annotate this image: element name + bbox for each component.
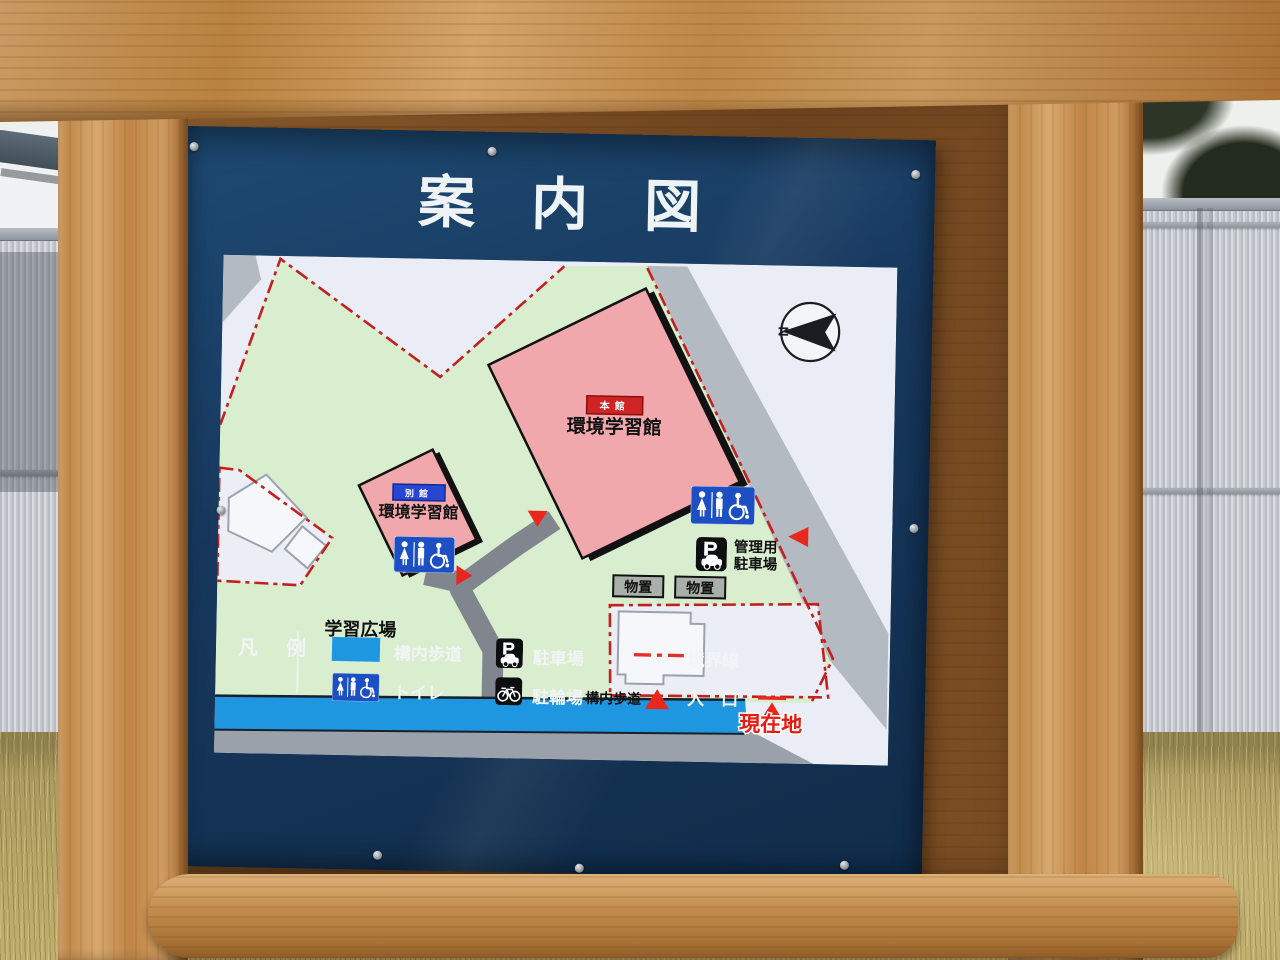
fence-panel-gap: [1207, 208, 1213, 763]
main-building-badge-label: 本館: [600, 399, 630, 413]
screw: [575, 864, 584, 873]
toilet-icon: [394, 536, 455, 573]
bicycle-icon: [495, 677, 523, 706]
sign-title: 案内図: [184, 152, 935, 248]
legend-entrance-label: 入 口: [687, 685, 738, 711]
map-walkway-label: 構内歩道: [585, 690, 641, 707]
boundary-line-sample: [634, 651, 684, 660]
toilet-icon: [690, 486, 755, 525]
screw: [911, 170, 920, 179]
admin-parking-label-1: 管理用: [734, 538, 778, 557]
parking-icon: [696, 537, 728, 572]
legend-toilet-label: トイレ: [393, 678, 444, 704]
wooden-bottom-rail: [148, 874, 1238, 958]
screw: [190, 142, 199, 151]
legend-bicycle-label: 駐輪場: [532, 683, 583, 709]
you-are-here-bar: [758, 696, 786, 700]
legend-walkway-label: 構内歩道: [394, 639, 462, 665]
north-label: N: [775, 326, 791, 336]
admin-parking-label-2: 駐車場: [734, 555, 778, 574]
main-building-name: 環境学習館: [567, 414, 662, 439]
annex-building-badge-label: 別館: [404, 487, 433, 499]
entrance-triangle-sample: [645, 689, 669, 709]
legend-parking-label: 駐車場: [533, 644, 584, 670]
legend-boundary-label: 境界線: [688, 646, 739, 672]
guide-sign-panel: 案内図: [172, 126, 936, 880]
wooden-post-right: [1008, 26, 1143, 960]
screw: [373, 851, 382, 860]
parking-icon: [496, 638, 524, 669]
screw: [840, 861, 849, 870]
fence-panel-gap: [1197, 208, 1203, 763]
legend-heading: 凡 例: [238, 631, 311, 661]
annex-building-name: 環境学習館: [378, 502, 458, 523]
walkway-swatch: [332, 637, 380, 662]
screw: [487, 147, 496, 156]
photo-of-guide-sign: 案内図: [0, 0, 1280, 960]
storage-label: 物置: [624, 578, 652, 595]
toilet-icon: [332, 672, 380, 703]
wooden-post-left: [58, 60, 188, 960]
screw: [909, 524, 918, 533]
you-are-here-label: 現在地: [739, 712, 802, 737]
storage-label: 物置: [686, 580, 714, 597]
